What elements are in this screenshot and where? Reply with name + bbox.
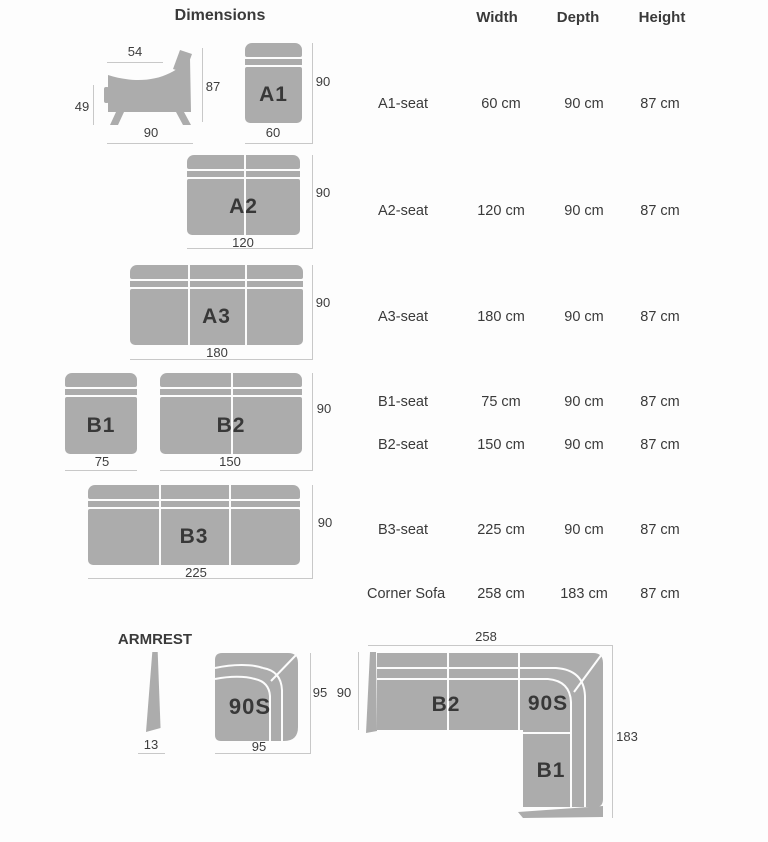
module-label: B1 [87, 414, 116, 438]
module-divider-seam [159, 485, 161, 565]
side-view-front-leg [110, 112, 124, 125]
module-seat: B1 [65, 397, 137, 454]
module-back-cushion [130, 265, 303, 279]
module-a3: A3 [130, 265, 303, 345]
module-divider-seam [188, 265, 190, 345]
module-seat: A1 [245, 67, 302, 123]
module-label: B2 [217, 414, 246, 438]
module-label: A1 [259, 83, 288, 107]
sofa-side-view [104, 50, 192, 125]
module-seat: A3 [130, 289, 303, 345]
module-back-cushion [65, 373, 137, 387]
dimension-sheet: { "heading": "Dimensions", "table": { "h… [0, 0, 768, 842]
module-b3: B3 [88, 485, 300, 565]
module-label: A2 [229, 195, 258, 219]
module-label: B3 [180, 525, 209, 549]
corner-bottom-armrest-wedge [518, 806, 603, 818]
module-back-cushion [245, 43, 302, 57]
module-a2: A2 [187, 155, 300, 235]
corner-b1-label: B1 [523, 759, 579, 783]
corner-body [377, 653, 603, 807]
module-divider-seam [245, 265, 247, 345]
module-label: A3 [202, 305, 231, 329]
module-divider-seam [229, 485, 231, 565]
corner-b2-label: B2 [418, 693, 474, 717]
module-b1: B1 [65, 373, 137, 454]
module-seat: B3 [88, 509, 300, 565]
module-back-cushion [88, 485, 300, 499]
s90-label: 90S [222, 694, 278, 720]
side-view-back-leg [176, 112, 191, 125]
corner-sofa-plan [366, 652, 603, 818]
module-b2: B2 [160, 373, 302, 454]
corner-left-armrest-wedge [366, 652, 377, 733]
corner-s90-label: 90S [520, 692, 576, 716]
module-a1: A1 [245, 43, 302, 123]
